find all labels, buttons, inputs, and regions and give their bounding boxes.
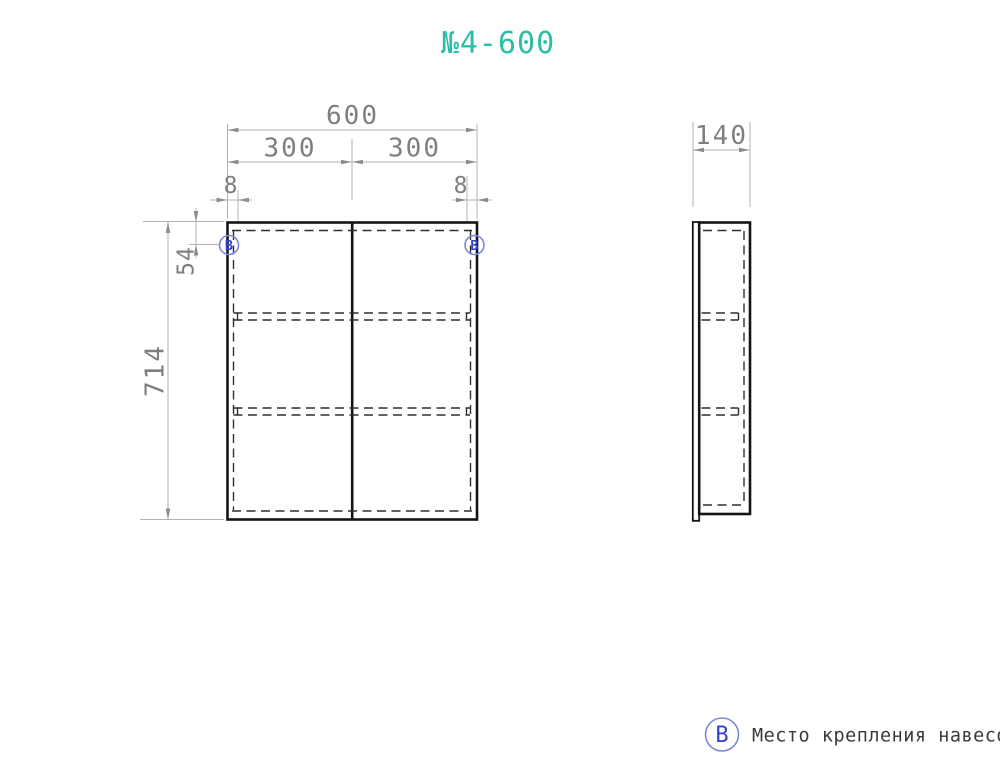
dim-depth-label: 140: [695, 121, 748, 151]
legend: B Место крепления навесов: [706, 718, 1000, 751]
dim-hinge-top-label: 54: [174, 246, 200, 276]
side-cabinet-outline: [699, 223, 750, 515]
legend-label: Место крепления навесов: [752, 726, 1000, 747]
front-view: B B: [220, 223, 485, 520]
side-view: [693, 222, 750, 521]
technical-drawing: №4-600 B B: [0, 0, 1000, 769]
dim-left-door-label: 300: [264, 134, 317, 164]
dim-total-width-label: 600: [326, 101, 379, 131]
hinge-marker-left: B: [220, 236, 239, 255]
hinge-marker-letter: B: [470, 238, 478, 254]
side-dimensions: 140: [693, 121, 750, 207]
drawing-title: №4-600: [441, 26, 555, 61]
front-dimensions-left: 714 54: [140, 208, 224, 520]
legend-marker-letter: B: [715, 723, 728, 748]
drawing-page: №4-600 B B: [0, 0, 1000, 769]
side-hidden-lines: [702, 231, 745, 506]
hinge-marker-right: B: [465, 236, 484, 255]
dim-right-door-label: 300: [388, 134, 441, 164]
dim-offset-right-label: 8: [454, 173, 469, 199]
hinge-marker-letter: B: [225, 238, 233, 254]
front-dimensions-top: 600 300 300 8 8: [210, 101, 492, 221]
dim-offset-left-label: 8: [224, 173, 239, 199]
dim-height-label: 714: [141, 344, 171, 397]
